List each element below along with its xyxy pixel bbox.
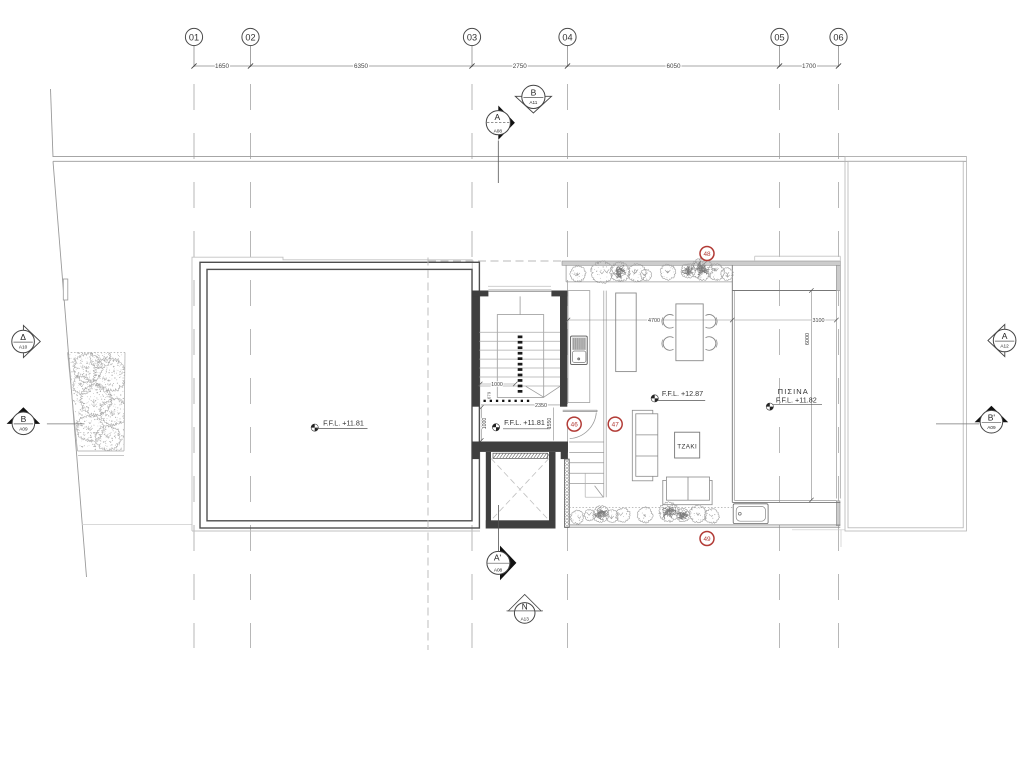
svg-text:A09: A09 <box>987 425 996 430</box>
svg-text:2350: 2350 <box>535 403 547 409</box>
svg-text:F.F.L. +11.81: F.F.L. +11.81 <box>504 418 545 427</box>
svg-text:ΤΖΑΚΙ: ΤΖΑΚΙ <box>677 443 697 450</box>
svg-text:A: A <box>1002 331 1008 341</box>
svg-text:679: 679 <box>487 391 492 399</box>
svg-text:6050: 6050 <box>666 63 681 70</box>
svg-text:F.F.L. +12.87: F.F.L. +12.87 <box>662 389 703 398</box>
svg-text:A11: A11 <box>529 100 537 105</box>
svg-text:02: 02 <box>245 32 255 42</box>
svg-text:1650: 1650 <box>215 63 230 70</box>
svg-text:3100: 3100 <box>813 318 825 324</box>
svg-text:4700: 4700 <box>648 318 660 324</box>
svg-text:Δ: Δ <box>20 332 26 342</box>
svg-text:N: N <box>522 602 528 611</box>
svg-text:A: A <box>494 112 500 122</box>
svg-text:1000: 1000 <box>482 418 488 430</box>
svg-text:A': A' <box>494 553 502 563</box>
svg-text:F.F.L. +11.82: F.F.L. +11.82 <box>776 396 817 405</box>
svg-text:03: 03 <box>467 32 477 42</box>
svg-text:1000: 1000 <box>491 382 503 388</box>
svg-text:47: 47 <box>612 421 620 428</box>
svg-text:2750: 2750 <box>513 63 528 70</box>
svg-text:B: B <box>531 88 537 98</box>
svg-text:01: 01 <box>189 32 199 42</box>
svg-text:A10: A10 <box>19 345 28 350</box>
svg-text:6000: 6000 <box>805 333 811 345</box>
svg-text:A08: A08 <box>494 568 503 573</box>
svg-text:B': B' <box>988 412 996 422</box>
svg-text:B: B <box>21 414 27 424</box>
svg-text:06: 06 <box>833 32 843 42</box>
svg-text:05: 05 <box>774 32 784 42</box>
svg-text:ΠΙΣΙΝΑ: ΠΙΣΙΝΑ <box>778 387 809 396</box>
svg-text:A09: A09 <box>19 427 28 432</box>
svg-text:1700: 1700 <box>802 63 817 70</box>
svg-text:48: 48 <box>703 251 711 258</box>
svg-text:A13: A13 <box>521 616 530 621</box>
svg-text:1550: 1550 <box>547 418 553 430</box>
svg-text:F.F.L. +11.81: F.F.L. +11.81 <box>323 419 364 428</box>
svg-text:6350: 6350 <box>354 63 369 70</box>
svg-text:04: 04 <box>562 32 572 42</box>
svg-text:A12: A12 <box>1000 344 1009 349</box>
svg-text:46: 46 <box>571 421 579 428</box>
svg-text:49: 49 <box>703 536 711 543</box>
svg-text:A08: A08 <box>494 128 503 133</box>
